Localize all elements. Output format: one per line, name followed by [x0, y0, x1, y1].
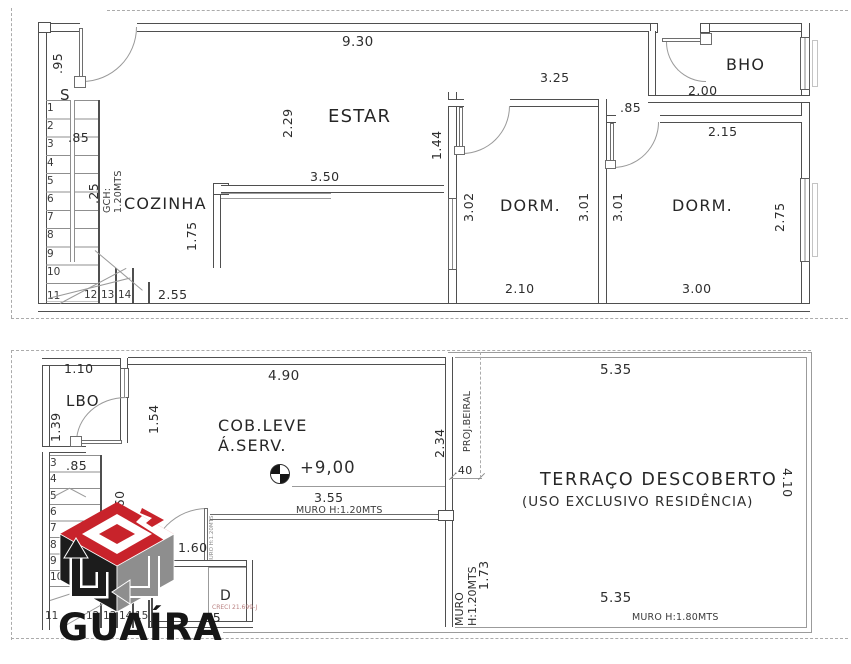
beiral-note: PROJ.BEIRAL — [462, 388, 473, 452]
level-benchmark-icon — [270, 464, 290, 484]
dim-muro-right-len: 1.73 — [476, 552, 491, 590]
boundary-dash — [11, 350, 811, 351]
room-label-d: D — [220, 588, 231, 604]
dim-lbo-right: 1.54 — [146, 396, 161, 434]
dim-level-width: 3.55 — [314, 490, 343, 505]
door-leaf — [204, 508, 208, 565]
dim-door-run: 1.60 — [178, 540, 207, 555]
dim-line — [292, 486, 445, 487]
muro-wall — [210, 514, 438, 520]
dim-cob-right: 2.34 — [432, 418, 447, 458]
terrace-line — [223, 632, 812, 633]
door-handle — [70, 436, 82, 447]
dim-terraco-top: 5.35 — [600, 362, 632, 378]
terrace-line — [455, 627, 807, 628]
room-label-terraco-2: (USO EXCLUSIVO RESIDÊNCIA) — [522, 494, 753, 510]
stair-number: 4 — [50, 473, 57, 485]
dim-terraco-right: 4.10 — [780, 468, 795, 514]
guaira-logo-icon — [56, 500, 178, 614]
dim-beiral-gap: .40 — [454, 464, 473, 477]
dim-terraco-bottom: 5.35 — [600, 590, 632, 606]
wall — [445, 357, 453, 627]
muro-note-bottom: MURO H:1.80MTS — [632, 612, 719, 623]
level-mark: +9,00 — [300, 458, 356, 477]
dim-lbo-top: 1.10 — [64, 361, 93, 376]
brand-wordmark: GUAÍRA — [58, 606, 223, 649]
dim-stair-width: .85 — [66, 458, 87, 473]
room-label-cob-2: Á.SERV. — [218, 436, 287, 455]
floor-plan-sheet: .95 S 1 2 3 4 5 6 7 8 9 10 11 .85 .25 GC… — [0, 0, 851, 664]
door-leaf — [78, 440, 122, 444]
boundary-dash — [11, 350, 12, 640]
terrace-line — [455, 357, 807, 358]
terrace-line — [448, 352, 812, 353]
inner-line — [208, 567, 246, 568]
dim-lbo-left: 1.39 — [48, 406, 63, 442]
wall — [128, 357, 452, 365]
terrace-line — [806, 357, 807, 627]
muro-note-door: MURO H:1.20MTS — [209, 508, 215, 564]
beiral-dash — [480, 352, 481, 478]
stair-number: 3 — [50, 457, 57, 469]
room-label-cob-1: COB.LEVE — [218, 416, 308, 435]
window — [120, 368, 129, 398]
room-label-lbo: LBO — [66, 392, 100, 410]
gate-cap — [438, 510, 454, 521]
wall — [120, 358, 128, 368]
dim-cob-top: 4.90 — [268, 368, 300, 384]
wall — [42, 452, 50, 630]
wall — [246, 560, 253, 628]
room-label-terraco-1: TERRAÇO DESCOBERTO — [540, 470, 777, 490]
terrace-line — [811, 352, 812, 632]
